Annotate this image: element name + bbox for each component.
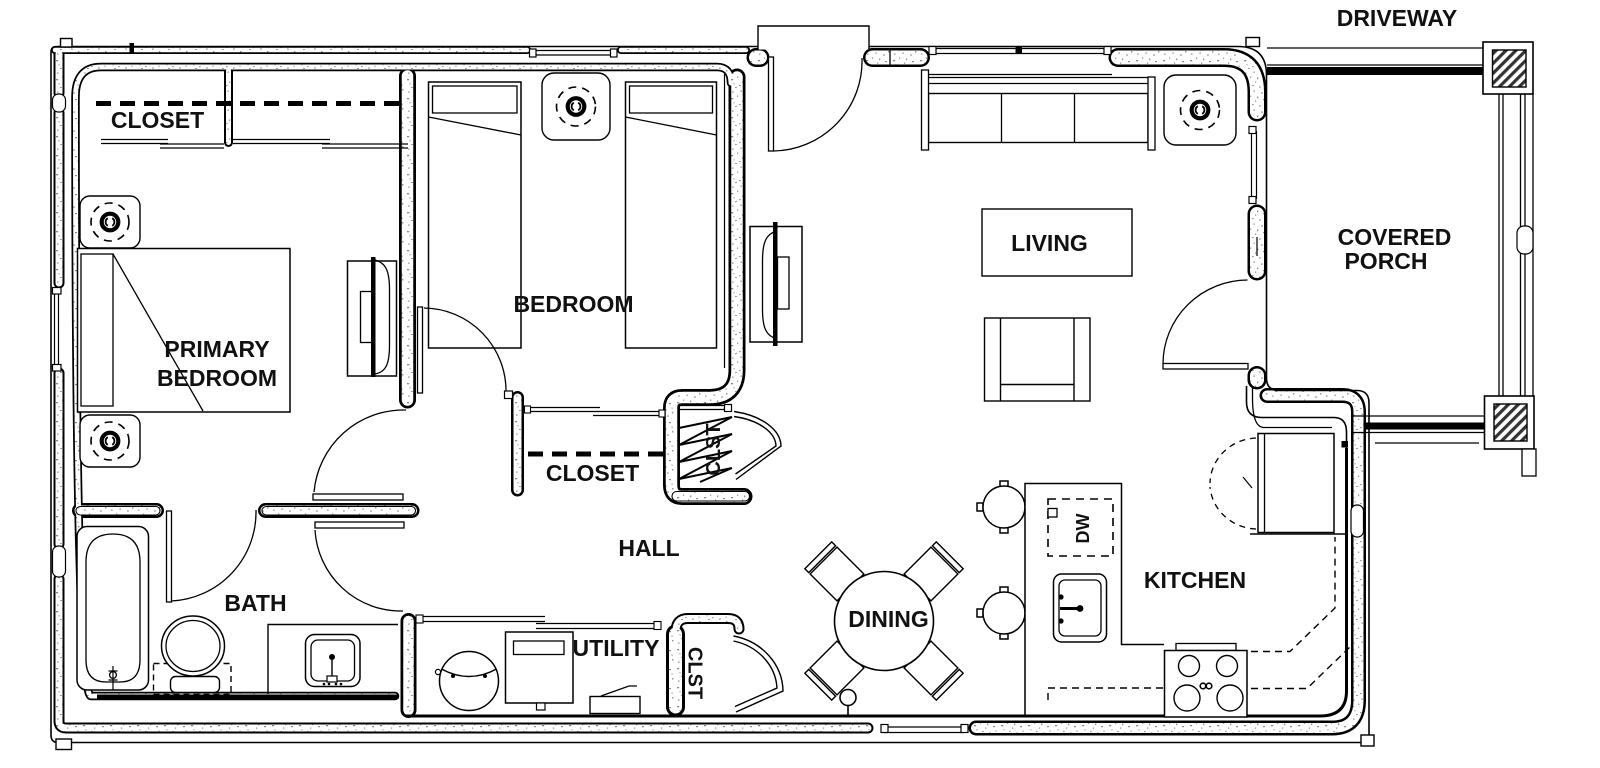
svg-text:BEDROOM: BEDROOM [157, 365, 277, 391]
svg-text:CLST: CLST [703, 423, 725, 475]
svg-text:LIVING: LIVING [1011, 230, 1088, 256]
svg-text:DW: DW [1073, 514, 1093, 544]
svg-text:CLOSET: CLOSET [546, 460, 639, 486]
svg-text:PORCH: PORCH [1344, 248, 1427, 274]
svg-text:CLST: CLST [684, 647, 706, 699]
svg-text:BEDROOM: BEDROOM [513, 291, 633, 317]
svg-text:PRIMARY: PRIMARY [164, 336, 269, 362]
svg-text:BATH: BATH [224, 590, 286, 616]
svg-text:DRIVEWAY: DRIVEWAY [1337, 5, 1458, 31]
svg-text:HALL: HALL [618, 535, 679, 561]
svg-text:UTILITY: UTILITY [573, 635, 660, 661]
svg-text:COVERED: COVERED [1338, 224, 1452, 250]
svg-text:CLOSET: CLOSET [111, 107, 204, 133]
svg-text:DINING: DINING [848, 606, 929, 632]
svg-text:KITCHEN: KITCHEN [1144, 567, 1246, 593]
